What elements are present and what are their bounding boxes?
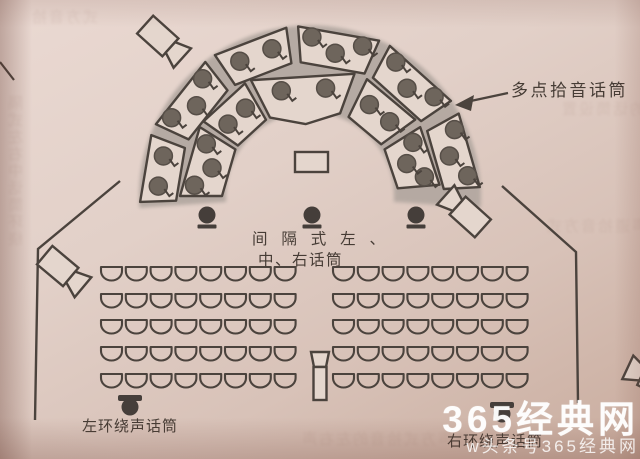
label-multipoint-pickup-mic: 多点拾音话筒 <box>511 82 628 101</box>
front-mic-base <box>407 225 426 229</box>
performer <box>387 53 405 71</box>
hanging-mic-icon <box>622 356 640 401</box>
audience-seat <box>250 347 271 360</box>
audience-seat <box>333 347 354 361</box>
audience-seat <box>457 374 478 388</box>
performer <box>404 133 422 151</box>
performer <box>219 115 237 133</box>
performer <box>303 28 321 46</box>
audience-seat <box>200 267 221 281</box>
audience-seat <box>200 347 221 361</box>
audience-seat <box>507 347 528 360</box>
performer <box>263 40 281 58</box>
performer <box>163 109 181 127</box>
performer <box>237 99 255 117</box>
performer <box>354 37 372 55</box>
book-page-photo: 体声方式拾音的左右声 的话筒设置 声道拾音方式 隔式左右中话筒环绕 式方音拾 多… <box>0 0 640 459</box>
audience-seat <box>432 267 453 281</box>
audience-seat <box>101 374 122 388</box>
audience-seat <box>407 374 428 388</box>
performer <box>425 88 443 106</box>
audience-seat <box>101 320 122 334</box>
audience-seat <box>151 347 172 360</box>
audience-seat <box>407 347 428 361</box>
performer <box>398 155 416 173</box>
front-mic-icon <box>199 207 216 224</box>
performer <box>194 70 212 88</box>
audience-seat <box>200 320 221 334</box>
performer <box>272 82 290 100</box>
audience-seat <box>225 374 246 388</box>
audience-seat <box>432 374 453 388</box>
audience-seat <box>457 347 478 361</box>
audience-seat <box>101 294 122 308</box>
performer <box>203 159 221 177</box>
wall-line-fragment <box>0 62 14 80</box>
audience-seat <box>482 320 503 334</box>
performer <box>231 52 249 70</box>
audience-seat <box>175 320 196 334</box>
performer <box>197 135 215 153</box>
audience-seat <box>101 347 122 361</box>
audience-seat <box>175 374 196 388</box>
label-spaced-lcr-mics-line2: 中、右话筒 <box>258 252 343 269</box>
audience-seat <box>482 347 503 361</box>
audience-seat <box>126 294 147 308</box>
performer <box>398 79 416 97</box>
label-right-surround-mic: 右环绕声话筒 <box>447 434 543 451</box>
audience-seat <box>200 294 221 308</box>
performer <box>415 168 433 186</box>
audience-seat <box>175 267 196 281</box>
audience-seat <box>275 374 296 388</box>
performer <box>188 97 206 115</box>
audience-seat <box>407 320 428 334</box>
audience-seat <box>383 347 404 361</box>
audience-seat <box>126 374 147 388</box>
performer <box>317 79 335 97</box>
performer <box>459 167 477 185</box>
audience-seat <box>225 347 246 361</box>
audience-seat <box>383 294 404 308</box>
front-mic-icon <box>304 207 321 224</box>
audience-seat <box>383 320 404 334</box>
audience-seat <box>151 294 172 307</box>
audience-seat <box>151 267 172 280</box>
audience-seat <box>225 294 246 308</box>
surround-mic-icon <box>122 399 139 416</box>
audience-seat <box>101 267 122 281</box>
surround-mic-icon <box>494 406 511 423</box>
performer <box>326 44 344 62</box>
audience-seat <box>432 320 453 334</box>
audience-seat <box>507 320 528 333</box>
audience-seat <box>482 267 503 281</box>
audience-seat <box>358 294 379 308</box>
audience-seat <box>358 374 379 388</box>
audience-seat <box>333 294 354 308</box>
audience-seat <box>333 374 354 388</box>
aisle-mic-body <box>314 367 327 400</box>
stage-layout-diagram <box>0 0 640 459</box>
front-mic-base <box>303 225 322 229</box>
audience-seat <box>250 320 271 333</box>
audience-seat <box>250 294 271 307</box>
performer <box>186 176 204 194</box>
audience-seat <box>250 374 271 387</box>
audience-seat <box>126 347 147 361</box>
label-spaced-lcr-mics-line1: 间 隔 式 左 、 <box>252 231 390 248</box>
audience-seat <box>333 320 354 334</box>
audience-seat <box>175 294 196 308</box>
audience-seat <box>407 294 428 308</box>
audience-seat <box>275 294 296 308</box>
audience-seat <box>432 347 453 361</box>
front-mic-icon <box>408 207 425 224</box>
performer <box>360 96 378 114</box>
audience-seat <box>482 294 503 308</box>
audience-seat <box>275 320 296 334</box>
audience-seat <box>457 320 478 334</box>
performer <box>440 147 458 165</box>
hall-wall <box>35 181 120 420</box>
audience-seat <box>432 294 453 308</box>
audience-seat <box>358 347 379 361</box>
audience-seat <box>457 267 478 281</box>
audience-seat <box>225 267 246 281</box>
hanging-mic-icon <box>36 245 91 297</box>
audience-seat <box>482 374 503 388</box>
audience-seat <box>457 294 478 308</box>
hanging-mic-icon <box>136 15 191 68</box>
audience-seat <box>507 374 528 387</box>
audience-seat <box>358 320 379 334</box>
aisle-mic-head <box>311 352 329 367</box>
performer <box>446 121 464 139</box>
audience-seat <box>383 374 404 388</box>
performer <box>149 177 167 195</box>
audience-seat <box>507 294 528 307</box>
callout-arrow-head <box>455 95 474 111</box>
front-mic-base <box>198 225 217 229</box>
performer <box>381 113 399 131</box>
audience-seat <box>507 267 528 280</box>
audience-seat <box>151 374 172 387</box>
audience-seat <box>383 267 404 281</box>
audience-seat <box>275 347 296 361</box>
audience-seat <box>358 267 379 281</box>
audience-seat <box>407 267 428 281</box>
audience-seat <box>225 320 246 334</box>
performer <box>154 147 172 165</box>
audience-seat <box>151 320 172 333</box>
audience-seat <box>175 347 196 361</box>
audience-seat <box>126 320 147 334</box>
audience-seat <box>126 267 147 281</box>
label-left-surround-mic: 左环绕声话筒 <box>82 419 178 436</box>
conductor-podium <box>295 152 328 172</box>
audience-seat <box>200 374 221 388</box>
